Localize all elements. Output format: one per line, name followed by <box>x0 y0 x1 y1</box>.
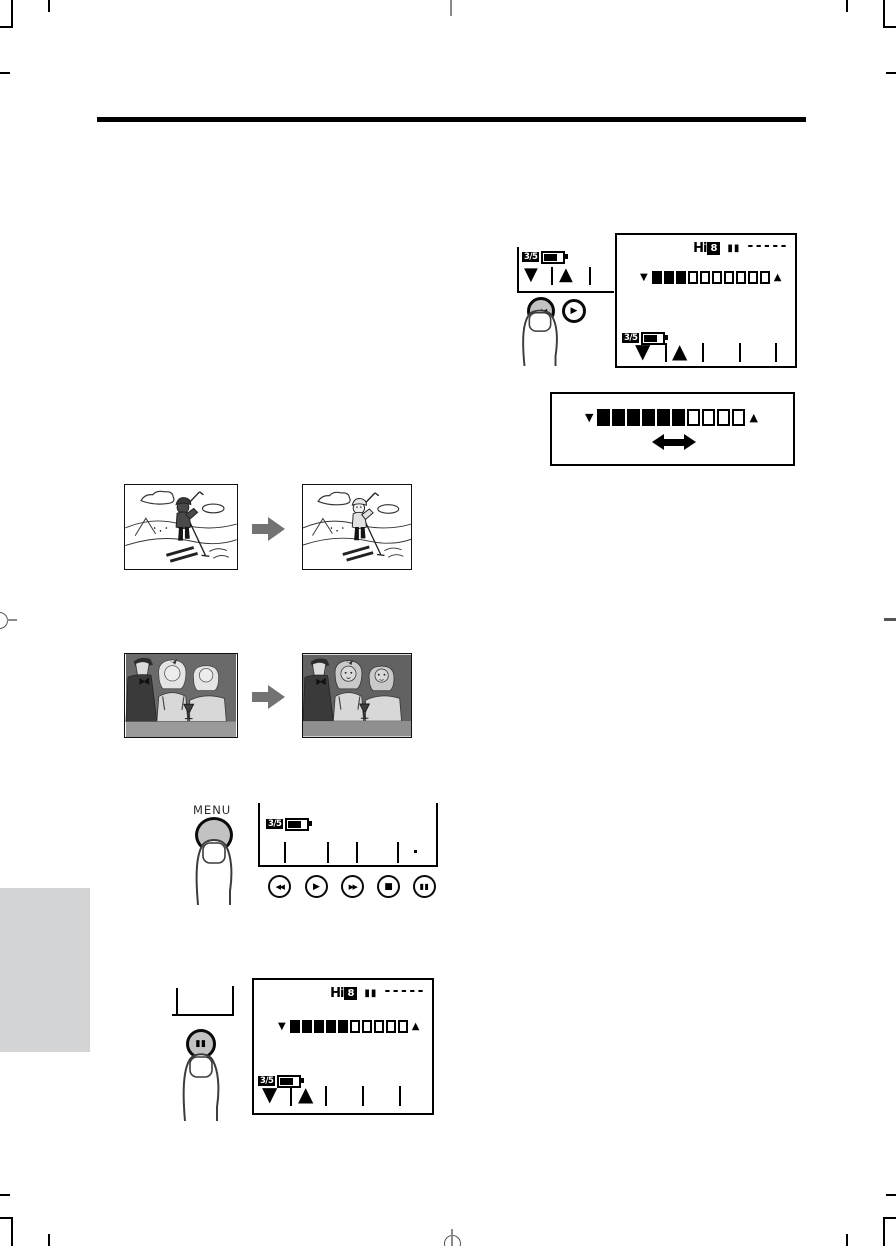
tick-mark <box>739 343 741 362</box>
registration-mark <box>451 1229 453 1246</box>
illustration-ski-dark <box>124 484 238 570</box>
illustration-ski-bright <box>302 484 412 570</box>
volume-up-icon: ▲ <box>298 1084 313 1104</box>
tick-mark <box>284 842 286 863</box>
meter-segment-filled <box>290 1020 300 1033</box>
meter-segment-empty <box>374 1020 384 1033</box>
meter-down-arrow: ▼ <box>278 1022 286 1032</box>
crop-mark <box>48 1234 50 1246</box>
tape-counter-dashes: ----- <box>384 983 426 999</box>
meter-segment-empty <box>398 1020 408 1033</box>
adjust-bar-meter: ▼▲ <box>582 409 761 426</box>
panel-fragment-border <box>517 247 519 293</box>
meter-segment-empty <box>688 271 698 284</box>
volume-down-icon: ▼ <box>635 341 650 361</box>
registration-mark <box>0 612 8 629</box>
meter-up-arrow: ▲ <box>774 273 782 283</box>
meter-segment-filled <box>676 271 686 284</box>
tick-dot <box>414 850 417 853</box>
meter-segment-filled <box>642 409 655 426</box>
fast-forward-icon: ▶▶ <box>349 883 357 891</box>
meter-segment-filled <box>597 409 610 426</box>
crop-mark <box>886 72 896 74</box>
battery-icon <box>541 251 565 264</box>
meter-segment-empty <box>760 271 770 284</box>
lcd-screen-volume: Hi8 ▮▮ ----- ▼▲ 3/5 ▼ ▲ <box>615 233 797 368</box>
meter-segment-empty <box>702 409 715 426</box>
meter-segment-empty <box>732 409 745 426</box>
play-button-illustration: ▶ <box>305 875 328 898</box>
registration-mark <box>444 1235 461 1246</box>
stop-icon: ■ <box>384 882 393 892</box>
meter-segment-filled <box>302 1020 312 1033</box>
panel-fragment-border <box>176 988 178 1014</box>
meter-segment-filled <box>664 271 674 284</box>
meter-segment-filled <box>652 271 662 284</box>
finger-icon <box>175 1047 227 1121</box>
meter-segment-filled <box>627 409 640 426</box>
tick-mark <box>327 842 329 863</box>
tick-mark <box>702 343 704 362</box>
meter-segment-empty <box>712 271 722 284</box>
battery-indicator: 3/5 <box>522 250 565 264</box>
meter-segment-filled <box>314 1020 324 1033</box>
meter-down-arrow: ▼ <box>585 412 593 423</box>
meter-segment-empty <box>717 409 730 426</box>
pause-indicator: ▮▮ <box>727 243 740 254</box>
rewind-button-illustration: ◀◀ <box>268 875 291 898</box>
finger-icon <box>514 304 566 366</box>
battery-label: 3/5 <box>266 819 283 830</box>
crop-mark <box>883 0 885 28</box>
meter-segment-filled <box>338 1020 348 1033</box>
volume-up-icon: ▲ <box>559 266 573 284</box>
illustration-party-pale <box>124 653 238 738</box>
lcd-status-row: Hi8 ▮▮ ----- <box>330 985 426 1001</box>
meter-segment-empty <box>687 409 700 426</box>
crop-mark <box>846 1234 848 1246</box>
tick-mark <box>356 842 358 863</box>
registration-mark <box>884 618 896 621</box>
stop-button-illustration: ■ <box>377 875 400 898</box>
left-right-arrow-icon <box>652 434 696 450</box>
crop-mark <box>48 0 50 12</box>
play-icon: ▶ <box>313 882 320 892</box>
meter-segment-empty <box>748 271 758 284</box>
meter-segment-empty <box>350 1020 360 1033</box>
pause-button-illustration: ▮▮ <box>413 875 436 898</box>
meter-segment-empty <box>700 271 710 284</box>
meter-up-arrow: ▲ <box>412 1022 420 1032</box>
header-rule <box>97 117 806 122</box>
battery-label: 3/5 <box>522 252 539 263</box>
menu-lcd-border <box>436 803 438 867</box>
volume-bar-meter: ▼▲ <box>637 271 784 284</box>
volume-bar-meter: ▼▲ <box>275 1020 422 1033</box>
crop-mark <box>846 0 848 12</box>
play-icon: ▶ <box>571 306 578 316</box>
crop-mark <box>886 1194 896 1196</box>
menu-button-label: MENU <box>193 803 231 817</box>
meter-segment-filled <box>657 409 670 426</box>
hi8-logo: Hi8 <box>693 241 720 256</box>
adjust-bar-box: ▼▲ <box>550 392 795 466</box>
next-step-arrow-icon <box>252 517 286 541</box>
tick-mark <box>362 1086 364 1106</box>
meter-up-arrow: ▲ <box>749 412 757 423</box>
meter-segment-filled <box>672 409 685 426</box>
illustration-party-vivid <box>302 653 412 738</box>
rewind-icon: ◀◀ <box>276 883 284 891</box>
meter-down-arrow: ▼ <box>640 273 648 283</box>
tick-mark <box>551 267 553 285</box>
crop-mark <box>883 1217 885 1246</box>
panel-fragment-border <box>232 986 234 1016</box>
pause-indicator: ▮▮ <box>364 988 377 999</box>
finger-icon <box>188 833 240 905</box>
hi8-logo: Hi8 <box>330 986 357 1001</box>
meter-segment-empty <box>362 1020 372 1033</box>
volume-up-icon: ▲ <box>672 341 687 361</box>
meter-segment-filled <box>326 1020 336 1033</box>
tick-mark <box>589 267 591 285</box>
meter-segment-filled <box>612 409 625 426</box>
fast-forward-button-illustration: ▶▶ <box>341 875 364 898</box>
crop-mark <box>11 0 13 28</box>
meter-segment-empty <box>736 271 746 284</box>
pause-icon: ▮▮ <box>420 882 430 891</box>
tick-mark <box>397 842 399 863</box>
menu-lcd-border <box>258 865 438 867</box>
crop-mark <box>0 1194 10 1196</box>
lcd-status-row: Hi8 ▮▮ ----- <box>693 240 789 256</box>
menu-lcd-border <box>258 803 260 867</box>
volume-down-icon: ▼ <box>524 266 538 284</box>
battery-icon <box>285 818 309 831</box>
tape-counter-dashes: ----- <box>747 238 789 254</box>
volume-down-icon: ▼ <box>262 1084 277 1104</box>
chapter-edge-tab <box>0 888 90 1052</box>
tick-mark <box>775 343 777 362</box>
tick-mark <box>399 1086 401 1106</box>
lcd-screen-volume: Hi8 ▮▮ ----- ▼▲ 3/5 ▼ ▲ <box>252 978 434 1115</box>
meter-segment-empty <box>724 271 734 284</box>
tick-mark <box>290 1086 292 1106</box>
panel-fragment-border <box>172 1014 234 1016</box>
manual-page: 3/5 ▼ ▲ ◀◀ ▶ Hi8 ▮▮ ----- ▼▲ 3/5 ▼ ▲ ▼▲ <box>0 0 896 1246</box>
next-step-arrow-icon <box>252 685 286 709</box>
registration-mark <box>7 619 17 621</box>
battery-indicator: 3/5 <box>266 817 309 831</box>
tick-mark <box>665 343 667 362</box>
crop-mark <box>0 72 10 74</box>
meter-segment-empty <box>386 1020 396 1033</box>
tick-mark <box>325 1086 327 1106</box>
crop-mark <box>11 1217 13 1246</box>
registration-mark <box>450 0 452 16</box>
panel-fragment-border <box>517 291 614 293</box>
